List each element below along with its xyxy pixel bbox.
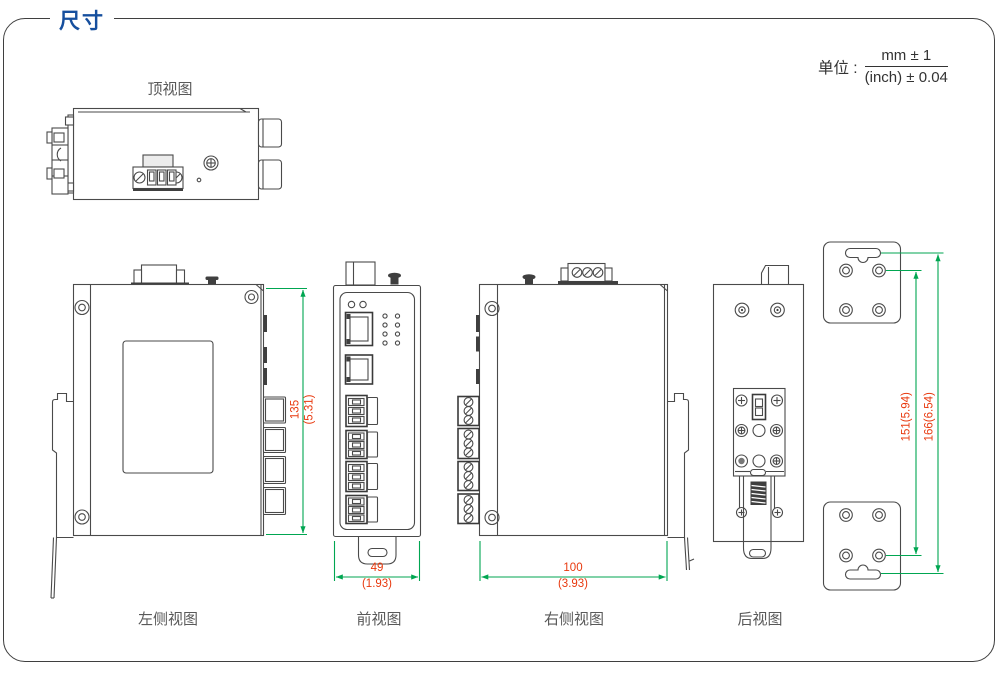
left-view-port-tabs (264, 397, 286, 515)
right-side-view-drawing (458, 264, 694, 571)
right-view-terminal-blocks (458, 397, 479, 524)
front-view-drawing (334, 262, 421, 564)
left-side-view-drawing (51, 265, 286, 598)
left-view-top-terminal (142, 265, 177, 284)
dimension-text-bracket-slot-spacing: 166(6.54) (923, 382, 937, 452)
dimension-text-bracket-hole-spacing: 151(5.94) (900, 382, 914, 452)
unit-inch-tolerance: (inch) ± 0.04 (865, 67, 948, 86)
left-view-ground-screw (206, 277, 219, 281)
rear-view-drawing (714, 266, 804, 559)
rear-view-top-tab (762, 266, 789, 285)
front-view-ground-screw (388, 273, 401, 279)
right-view-din-clip (668, 394, 695, 571)
page-title: 尺寸 (50, 5, 114, 35)
right-view-ground-screw (523, 274, 536, 280)
dimension-text-side-width-mm: 100 (548, 562, 598, 576)
left-view-din-clip (51, 394, 74, 599)
dimension-text-front-width-inch: (1.93) (347, 578, 407, 592)
top-view-left-strip (68, 115, 74, 193)
unit-fraction: mm ± 1 (inch) ± 0.04 (865, 47, 948, 86)
unit-mm-tolerance: mm ± 1 (865, 47, 948, 67)
dimension-text-side-width-inch: (3.93) (543, 578, 603, 592)
top-view-drawing (47, 109, 282, 200)
front-view-bottom-tab (359, 537, 397, 565)
dimension-text-front-width-mm: 49 (352, 562, 402, 576)
right-view-top-terminal (558, 264, 618, 285)
wall-bracket-top (824, 242, 901, 323)
front-view-rj45-port-2 (346, 355, 373, 384)
unit-note: 单位 : mm ± 1 (inch) ± 0.04 (818, 47, 948, 86)
line-art-layer (0, 0, 1000, 677)
front-view-rj45-port-1 (346, 313, 373, 346)
dimension-text-height: 135(5.31) (290, 379, 317, 441)
dimension-diagram-page: 尺寸 单位 : mm ± 1 (inch) ± 0.04 顶视图 左侧视图 前视… (0, 0, 1000, 677)
top-view-right-tab-2 (259, 160, 282, 189)
top-view-left-connectors (47, 128, 68, 194)
unit-label: 单位 : (818, 56, 858, 78)
front-view-top-tab (346, 262, 375, 285)
top-view-right-tab-1 (259, 119, 282, 147)
wall-bracket-bottom (824, 502, 901, 590)
